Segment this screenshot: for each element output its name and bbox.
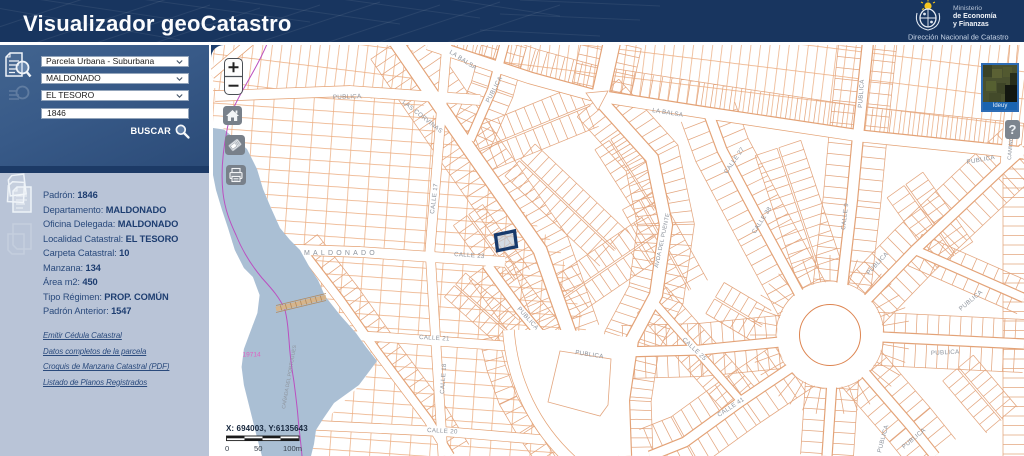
svg-text:y Finanzas: y Finanzas: [953, 21, 989, 28]
svg-text:Dirección Nacional de Catastro: Dirección Nacional de Catastro: [908, 33, 1009, 42]
svg-text:Ministerio: Ministerio: [953, 5, 982, 12]
svg-text:100m: 100m: [283, 444, 302, 453]
svg-text:50: 50: [254, 444, 262, 453]
svg-text:MALDONADO: MALDONADO: [304, 250, 378, 257]
svg-text:de Economía: de Economía: [953, 13, 997, 20]
svg-text:PUBLICA: PUBLICA: [333, 93, 362, 101]
svg-text:0: 0: [225, 444, 229, 453]
svg-text:19714: 19714: [243, 352, 261, 359]
